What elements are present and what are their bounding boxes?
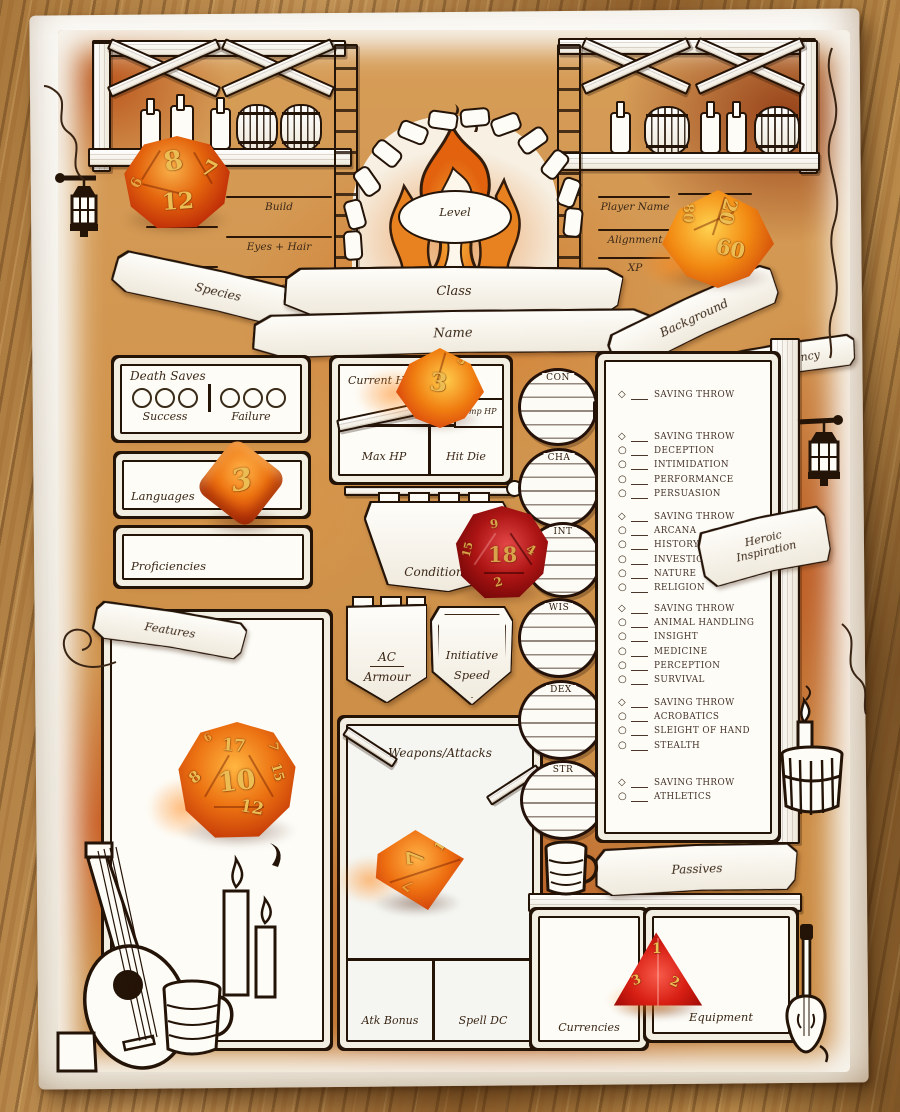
circle-marker[interactable]: ○ <box>618 583 631 593</box>
modifier-line[interactable] <box>631 661 648 671</box>
modifier-line[interactable] <box>631 390 648 400</box>
divider <box>208 384 211 412</box>
circle-marker[interactable]: ○ <box>618 792 631 802</box>
smoke-wisp <box>56 622 116 682</box>
skill-row[interactable]: ◇SAVING THROW <box>618 602 754 616</box>
die-d20-orange[interactable]: 10 17 12 8 15 7 6 <box>170 718 306 852</box>
barrel-icon <box>754 106 800 156</box>
skill-group-str: ◇SAVING THROW ○ATHLETICS <box>618 776 735 804</box>
skill-label: NATURE <box>654 569 696 579</box>
skill-label: ARCANA <box>654 526 697 536</box>
violin-icon <box>776 918 840 1068</box>
initiative-speed-shield[interactable]: Initiative Speed <box>432 608 512 704</box>
bottle-icon <box>726 112 747 154</box>
name-label: Name <box>433 325 472 341</box>
die-number: 7 <box>266 741 280 751</box>
max-hp-label: Max HP <box>340 450 428 463</box>
modifier-line[interactable] <box>631 489 648 499</box>
skill-row[interactable]: ◇SAVING THROW <box>618 510 736 524</box>
skill-label: SAVING THROW <box>654 512 735 522</box>
ability-circle-wis[interactable]: WIS <box>518 598 600 678</box>
modifier-line[interactable] <box>631 604 648 614</box>
arch-stone <box>342 230 363 261</box>
skill-row[interactable]: ○PERCEPTION <box>618 659 754 673</box>
circle-marker[interactable]: ○ <box>618 675 631 685</box>
circle-marker[interactable]: ○ <box>618 569 631 579</box>
death-save-failure-slot[interactable] <box>266 388 286 408</box>
hit-die-label: Hit Die <box>430 450 502 463</box>
skill-label: PERSUASION <box>654 489 721 499</box>
species-label: Species <box>194 280 243 304</box>
die-number: 17 <box>221 737 246 756</box>
skill-label: RELIGION <box>654 583 705 593</box>
die-number: 12 <box>161 189 195 214</box>
die-number: 80 <box>680 203 695 223</box>
death-save-failure-slot[interactable] <box>243 388 263 408</box>
divider <box>370 666 404 667</box>
modifier-line[interactable] <box>631 675 648 685</box>
skill-row[interactable]: ○SLEIGHT OF HAND <box>618 724 750 738</box>
passives-label: Passives <box>671 861 722 877</box>
skill-label: SLEIGHT OF HAND <box>654 726 750 736</box>
die-number: 7 <box>198 156 221 181</box>
skill-row[interactable]: ○STEALTH <box>618 739 750 753</box>
atk-bonus-label: Atk Bonus <box>348 1014 432 1027</box>
modifier-line[interactable] <box>631 583 648 593</box>
skill-row[interactable]: ○MEDICINE <box>618 645 754 659</box>
proficiencies-box[interactable]: Proficiencies <box>122 534 304 580</box>
spell-dc-label: Spell DC <box>434 1014 532 1027</box>
skill-label: ACROBATICS <box>654 712 719 722</box>
success-label: Success <box>132 410 198 423</box>
modifier-line[interactable] <box>631 618 648 628</box>
modifier-line[interactable] <box>631 698 648 708</box>
die-number: 15 <box>268 762 285 783</box>
skill-label: MEDICINE <box>654 647 707 657</box>
circle-marker[interactable]: ○ <box>618 555 631 565</box>
cha-label: CHA <box>544 453 575 463</box>
skill-row[interactable]: ○ATHLETICS <box>618 790 735 804</box>
modifier-line[interactable] <box>631 712 648 722</box>
initiative-label: Initiative <box>432 648 512 662</box>
ac-label: AC <box>348 650 426 664</box>
lute-candles-icon <box>58 843 340 1075</box>
diamond-marker[interactable]: ◇ <box>618 390 631 400</box>
skill-group-dex: ◇SAVING THROW ○ACROBATICS ○SLEIGHT OF HA… <box>618 696 750 753</box>
die-d4[interactable]: 1 3 2 <box>606 926 708 1020</box>
barrel-icon <box>280 104 322 152</box>
ability-circle-con[interactable]: CON <box>518 368 598 446</box>
die-number: 2 <box>668 975 682 991</box>
class-banner[interactable]: Class <box>284 268 624 314</box>
shelf-board <box>560 152 820 171</box>
die-number: 10 <box>217 766 257 797</box>
smoke-wisp <box>836 624 870 714</box>
lantern-icon <box>798 408 858 492</box>
skill-label: INTIMIDATION <box>654 460 729 470</box>
circle-marker[interactable]: ○ <box>618 647 631 657</box>
modifier-line[interactable] <box>631 475 648 485</box>
build-label: Build <box>226 201 332 213</box>
diamond-marker[interactable]: ◇ <box>618 432 631 442</box>
proficiencies-label: Proficiencies <box>131 559 206 573</box>
skill-label: ANIMAL HANDLING <box>654 618 754 628</box>
divider <box>348 958 532 961</box>
bottle-icon <box>610 112 631 154</box>
die-number: 1 <box>652 942 662 956</box>
circle-marker[interactable]: ○ <box>618 726 631 736</box>
circle-marker[interactable]: ○ <box>618 540 631 550</box>
ability-circle-str[interactable]: STR <box>520 760 606 840</box>
circle-marker[interactable]: ○ <box>618 446 631 456</box>
con-label: CON <box>542 373 574 383</box>
currencies-label: Currencies <box>540 1021 638 1034</box>
skill-label: SAVING THROW <box>654 604 735 614</box>
tankard-icon <box>538 836 604 898</box>
skill-row[interactable]: ◇SAVING THROW <box>618 430 735 444</box>
skill-label: PERFORMANCE <box>654 475 734 485</box>
arch-stone <box>427 109 459 132</box>
die-d10[interactable]: 3 5 <box>390 348 488 436</box>
circle-marker[interactable]: ○ <box>618 526 631 536</box>
die-number: 6 <box>202 731 214 744</box>
death-save-failure-slot[interactable] <box>220 388 240 408</box>
skill-row[interactable]: ○ACROBATICS <box>618 710 750 724</box>
die-number: 12 <box>239 798 265 819</box>
barrel-icon <box>236 104 278 152</box>
photo-scene: Level Build Eyes + Hair Gender Player Na… <box>0 0 900 1112</box>
diamond-marker[interactable]: ◇ <box>618 778 631 788</box>
circle-marker[interactable]: ○ <box>618 741 631 751</box>
skill-label: INSIGHT <box>654 632 698 642</box>
circle-marker[interactable]: ○ <box>618 475 631 485</box>
modifier-line[interactable] <box>631 569 648 579</box>
smoke-wisp <box>44 84 92 180</box>
skill-row[interactable]: ○INTIMIDATION <box>618 458 735 472</box>
die-number: 8 <box>186 768 203 786</box>
skill-row[interactable]: ◇SAVING THROW <box>618 776 735 790</box>
dex-label: DEX <box>546 685 576 695</box>
die-number: 2 <box>493 575 504 589</box>
skill-row[interactable]: ○SURVIVAL <box>618 673 754 687</box>
die-number: 8 <box>161 146 185 176</box>
die-d10-percentile[interactable]: 20 80 60 <box>656 190 780 296</box>
death-saves-title: Death Saves <box>130 369 206 383</box>
skill-label: SAVING THROW <box>654 698 735 708</box>
skill-row[interactable]: ○PERFORMANCE <box>618 473 735 487</box>
modifier-line[interactable] <box>631 555 648 565</box>
die-number: 15 <box>460 541 474 559</box>
skill-label: STEALTH <box>654 741 700 751</box>
level-field[interactable]: Level <box>398 190 512 244</box>
eyes-hair-label: Eyes + Hair <box>226 241 332 253</box>
modifier-line[interactable] <box>631 446 648 456</box>
die-number: 3 <box>428 369 449 396</box>
class-label: Class <box>436 284 471 299</box>
die-d6[interactable]: 3 <box>196 444 290 540</box>
modifier-line[interactable] <box>631 432 648 442</box>
die-number: 3 <box>630 973 643 988</box>
death-saves-box: Death Saves Success Failure <box>120 364 302 434</box>
skill-row[interactable]: ◇SAVING THROW <box>618 696 750 710</box>
diamond-marker[interactable]: ◇ <box>618 604 631 614</box>
modifier-line[interactable] <box>631 792 648 802</box>
weapons-attacks-label: Weapons/Attacks <box>348 746 532 760</box>
divider <box>432 958 435 1040</box>
barrel-icon <box>644 106 690 156</box>
eyes-hair-field-line[interactable] <box>226 236 332 238</box>
skill-row[interactable]: ◇SAVING THROW <box>618 388 735 402</box>
die-d12[interactable]: 8 7 12 6 <box>116 136 238 240</box>
death-save-success-slot[interactable] <box>178 388 198 408</box>
modifier-line[interactable] <box>631 460 648 470</box>
str-label: STR <box>549 765 577 775</box>
diamond-marker[interactable]: ◇ <box>618 512 631 522</box>
die-number: 20 <box>715 196 740 226</box>
circle-marker[interactable]: ○ <box>618 712 631 722</box>
skill-row[interactable]: ○ANIMAL HANDLING <box>618 616 754 630</box>
skills-panel: ◇SAVING THROW ◇SAVING THROW ○DECEPTION ○… <box>604 360 772 834</box>
skill-row[interactable]: ○PERSUASION <box>618 487 735 501</box>
modifier-line[interactable] <box>631 632 648 642</box>
die-number: 4 <box>523 543 538 559</box>
die-number: 1 <box>433 839 449 854</box>
die-d8[interactable]: 7 1 7 <box>366 828 468 918</box>
skill-label: DECEPTION <box>654 446 714 456</box>
circle-marker[interactable]: ○ <box>618 489 631 499</box>
level-label: Level <box>439 205 470 219</box>
skill-group-cha: ◇SAVING THROW ○DECEPTION ○INTIMIDATION ○… <box>618 430 735 501</box>
modifier-line[interactable] <box>631 526 648 536</box>
modifier-line[interactable] <box>631 540 648 550</box>
build-field-line[interactable] <box>226 196 332 198</box>
die-d20-red[interactable]: 18 9 4 2 15 <box>450 504 554 606</box>
skill-label: SURVIVAL <box>654 675 705 685</box>
skill-row[interactable]: ○INSIGHT <box>618 630 754 644</box>
die-number: 5 <box>455 353 469 368</box>
death-save-success-slot[interactable] <box>155 388 175 408</box>
arch-stone <box>459 107 491 129</box>
armour-label: Armour <box>348 670 426 684</box>
circle-marker[interactable]: ○ <box>618 632 631 642</box>
circle-marker[interactable]: ○ <box>618 460 631 470</box>
modifier-line[interactable] <box>631 741 648 751</box>
die-number: 9 <box>489 517 499 530</box>
modifier-line[interactable] <box>631 726 648 736</box>
circle-marker[interactable]: ○ <box>618 618 631 628</box>
skill-label: HISTORY <box>654 540 699 550</box>
ability-circle-dex[interactable]: DEX <box>518 680 604 760</box>
die-number: 3 <box>229 464 255 497</box>
circle-marker[interactable]: ○ <box>618 661 631 671</box>
passives-banner[interactable]: Passives <box>595 842 798 895</box>
languages-label: Languages <box>131 489 195 503</box>
skill-group-wis: ◇SAVING THROW ○ANIMAL HANDLING ○INSIGHT … <box>618 602 754 687</box>
bottle-icon <box>700 112 721 154</box>
features-label: Features <box>144 619 197 641</box>
arch-stone <box>562 207 584 239</box>
modifier-line[interactable] <box>631 512 648 522</box>
modifier-line[interactable] <box>631 778 648 788</box>
speed-label: Speed <box>432 668 512 682</box>
skill-label: SAVING THROW <box>654 778 735 788</box>
skill-row[interactable]: ○DECEPTION <box>618 444 735 458</box>
die-number: 60 <box>714 235 747 262</box>
diamond-marker[interactable]: ◇ <box>618 698 631 708</box>
skill-label: PERCEPTION <box>654 661 720 671</box>
die-number: 7 <box>404 849 428 867</box>
die-number: 18 <box>488 544 517 565</box>
death-save-success-slot[interactable] <box>132 388 152 408</box>
smoke-wisp <box>816 48 852 358</box>
ac-armour-pennant[interactable]: AC Armour <box>348 606 426 702</box>
modifier-line[interactable] <box>631 647 648 657</box>
skill-label: SAVING THROW <box>654 432 735 442</box>
skill-group-con: ◇SAVING THROW <box>618 388 735 402</box>
skill-label: SAVING THROW <box>654 390 735 400</box>
failure-label: Failure <box>218 410 284 423</box>
skill-label: ATHLETICS <box>654 792 711 802</box>
